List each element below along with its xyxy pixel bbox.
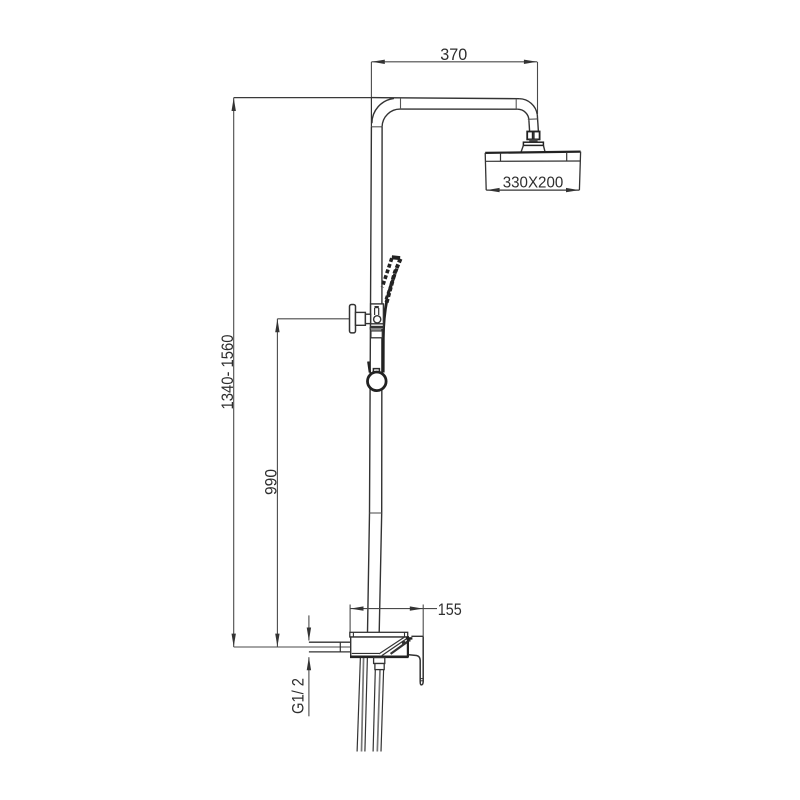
svg-text:370: 370 [440, 46, 467, 64]
svg-text:330X200: 330X200 [503, 175, 564, 192]
svg-text:G1/ 2: G1/ 2 [290, 678, 308, 714]
svg-text:1340- 1560: 1340- 1560 [219, 335, 237, 410]
svg-text:155: 155 [438, 601, 462, 619]
svg-text:990: 990 [263, 469, 281, 495]
